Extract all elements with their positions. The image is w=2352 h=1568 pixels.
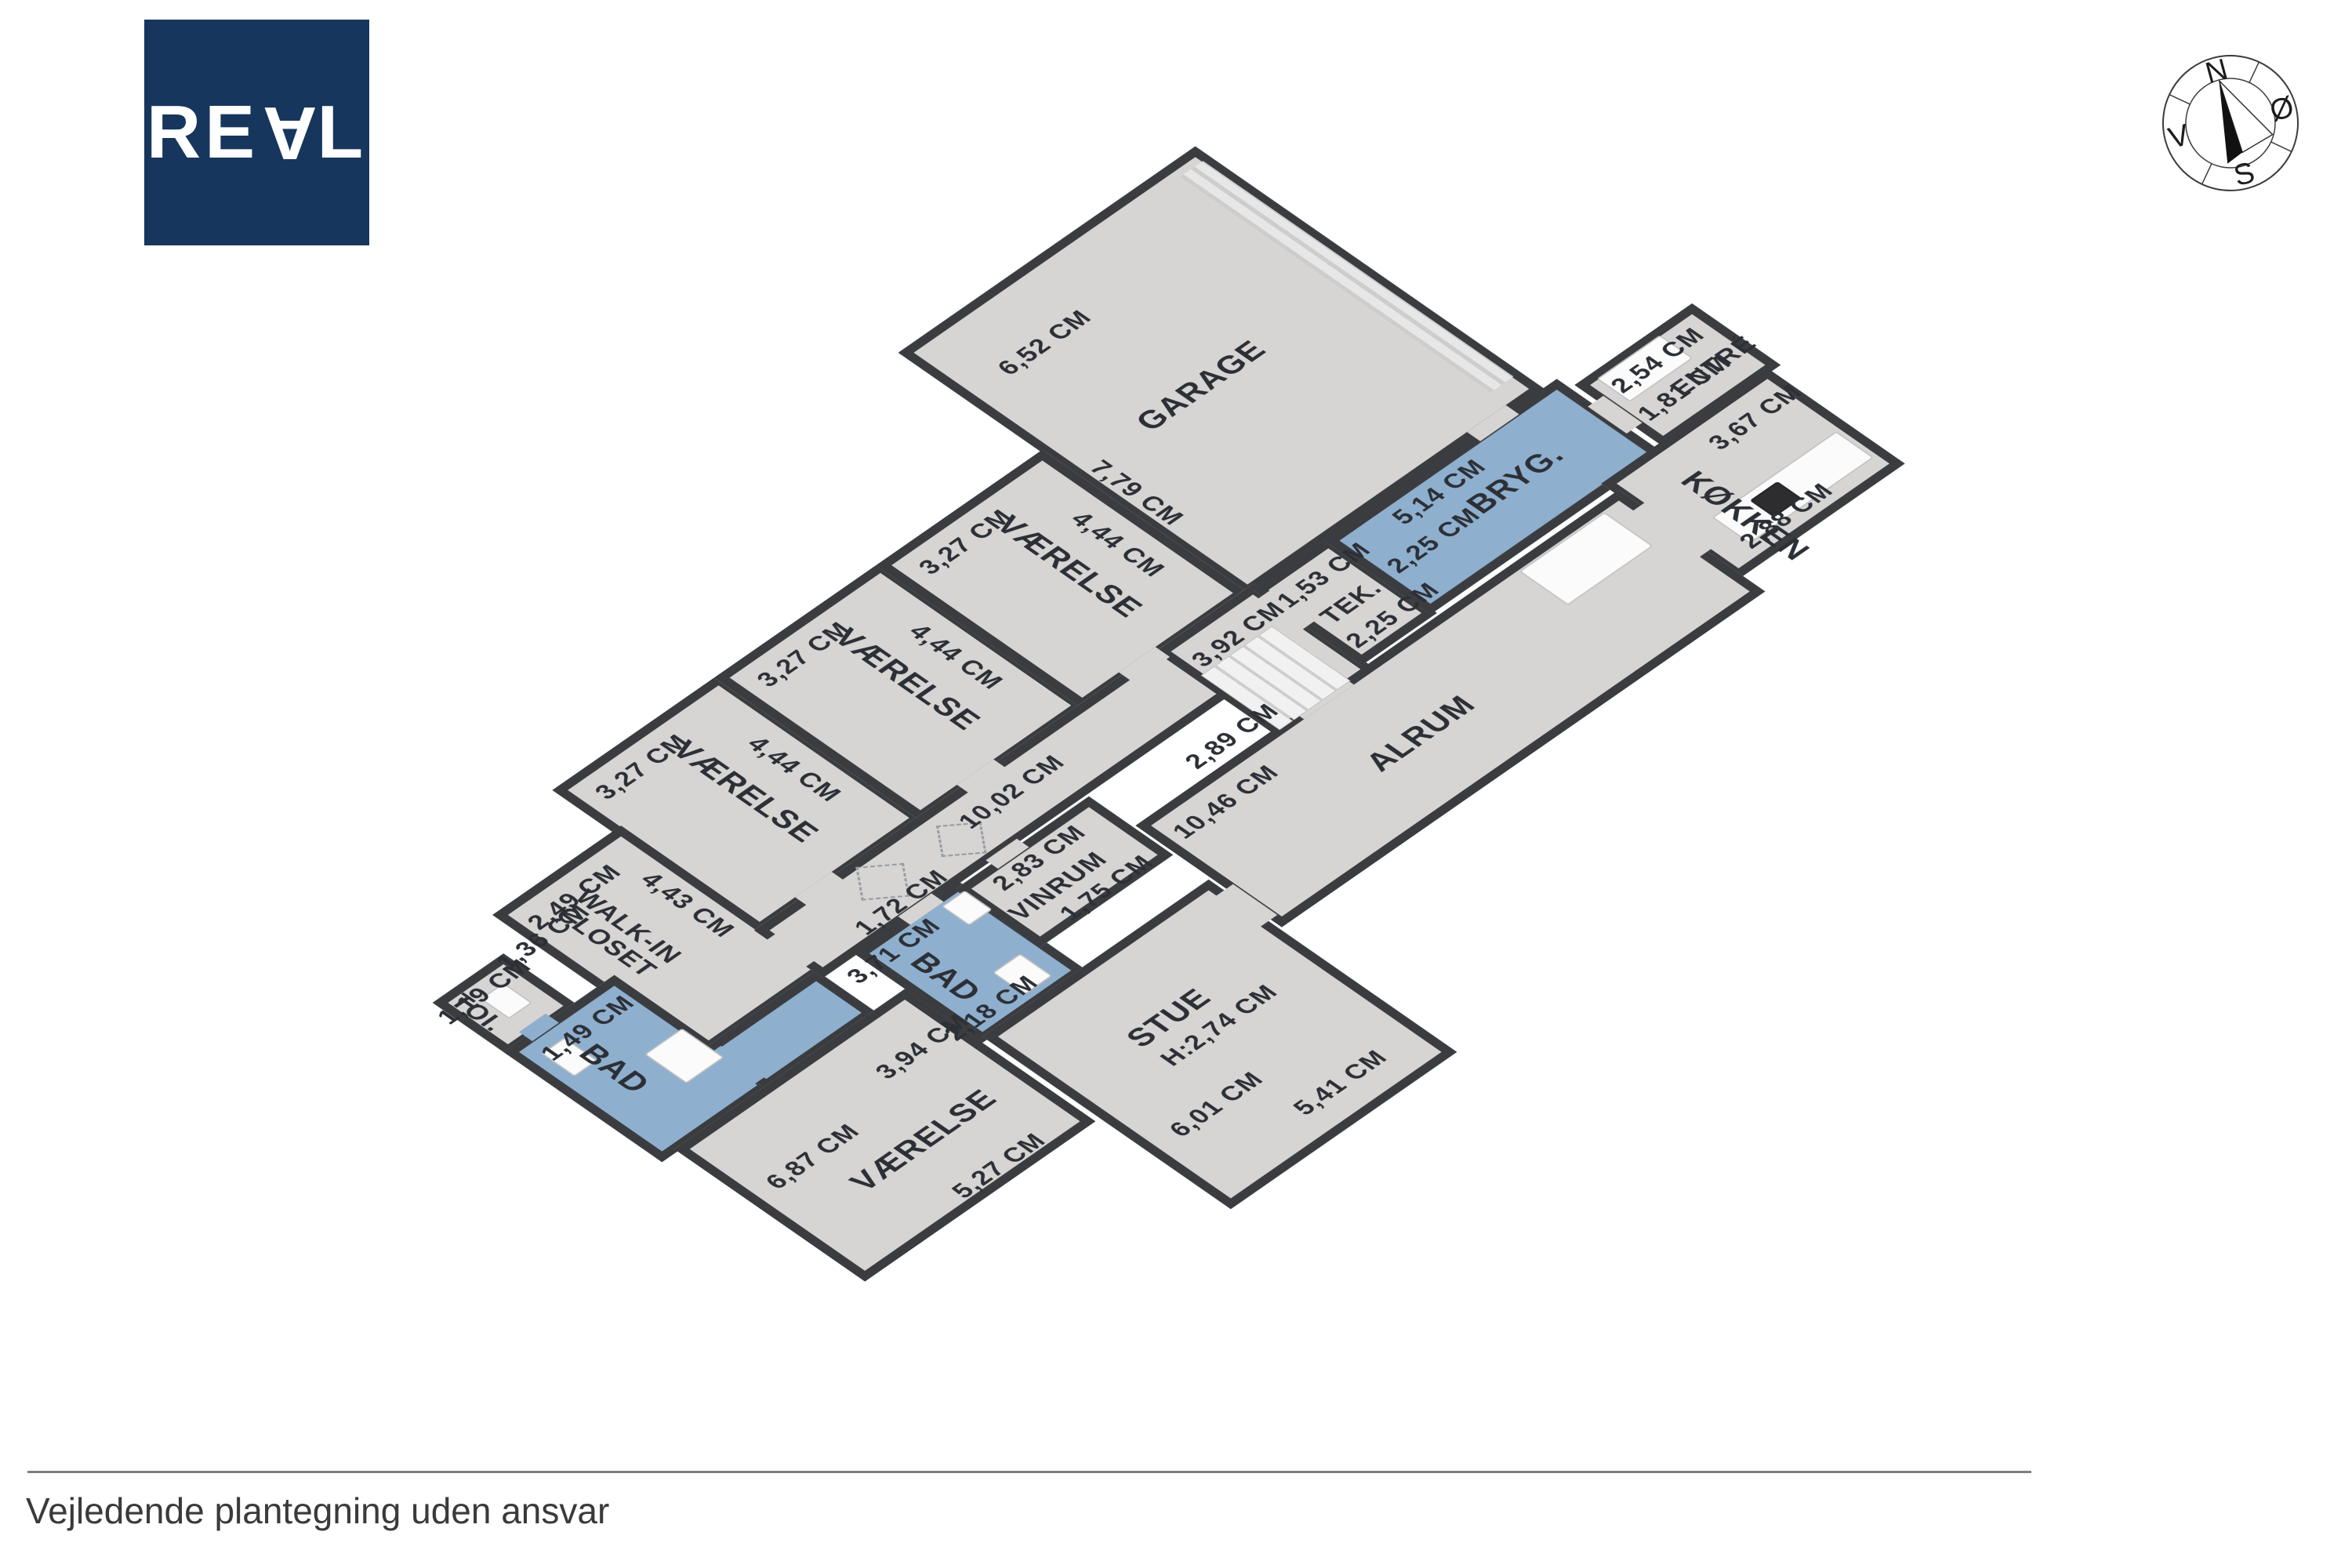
logo-letter-flipped-a: A <box>259 89 317 176</box>
real-logo: REAL <box>144 20 369 245</box>
footer-disclaimer: Vejledende plantegning uden ansvar <box>26 1490 609 1532</box>
logo-letter: R <box>147 89 205 176</box>
floor-plan-page: REAL N Ø S V <box>0 0 2352 1568</box>
floor-plan: 6,52 CM GARAGE 7,79 CM 3,27 CM VÆRELSE 4… <box>184 34 2152 1401</box>
logo-letter: E <box>205 89 259 176</box>
compass-icon: N Ø S V <box>2160 53 2301 194</box>
footer-divider <box>27 1471 2031 1473</box>
logo-letter: L <box>318 89 368 176</box>
